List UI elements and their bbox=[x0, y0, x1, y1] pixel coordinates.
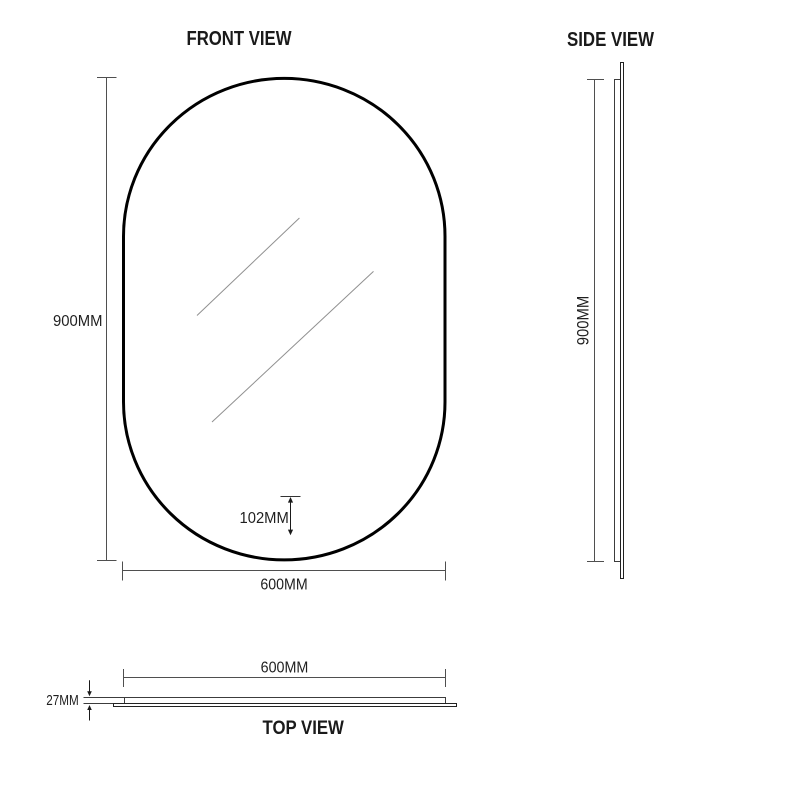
svg-text:TOP VIEW: TOP VIEW bbox=[263, 718, 344, 739]
svg-text:102MM: 102MM bbox=[240, 510, 289, 527]
svg-text:900MM: 900MM bbox=[575, 296, 593, 346]
svg-text:SIDE VIEW: SIDE VIEW bbox=[567, 28, 655, 51]
svg-text:900MM: 900MM bbox=[53, 313, 103, 330]
svg-text:FRONT VIEW: FRONT VIEW bbox=[187, 27, 293, 50]
svg-text:600MM: 600MM bbox=[261, 659, 309, 676]
svg-text:27MM: 27MM bbox=[46, 693, 79, 709]
svg-text:600MM: 600MM bbox=[260, 576, 307, 593]
